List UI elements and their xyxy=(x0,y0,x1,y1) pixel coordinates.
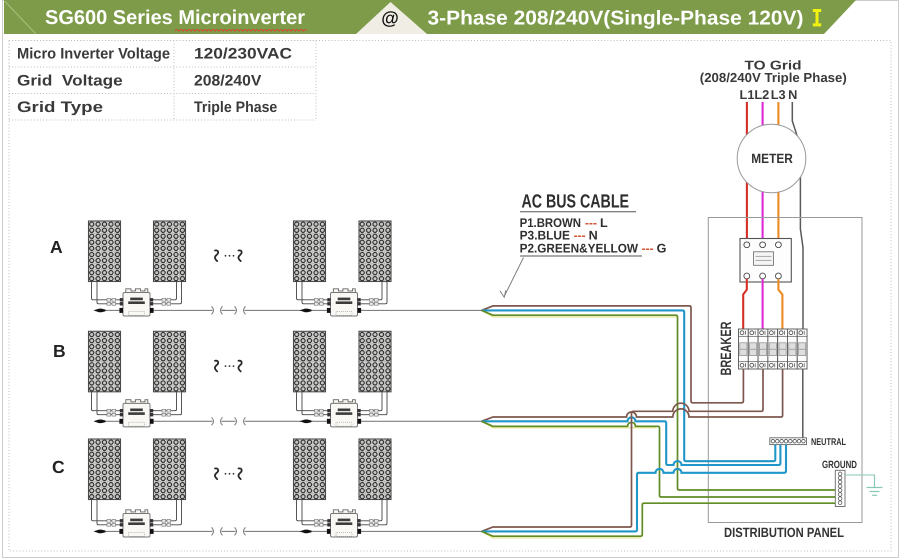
svg-text:Grid Type: Grid Type xyxy=(17,99,103,116)
svg-text:BREAKER: BREAKER xyxy=(718,321,735,375)
svg-text:P2.GREEN&YELLOW: P2.GREEN&YELLOW xyxy=(520,241,639,255)
svg-text:Grid Voltage: Grid Voltage xyxy=(17,73,123,90)
svg-text:METER: METER xyxy=(751,151,793,166)
svg-text:(208/240V Triple Phase): (208/240V Triple Phase) xyxy=(700,70,847,85)
svg-text:L: L xyxy=(600,216,608,230)
svg-text:G: G xyxy=(657,241,667,255)
svg-text:N: N xyxy=(788,87,797,102)
svg-text:Micro Inverter Voltage: Micro Inverter Voltage xyxy=(17,46,170,63)
svg-text:SG600 Series Microinverter: SG600 Series Microinverter xyxy=(45,7,305,29)
svg-text:@: @ xyxy=(381,8,399,28)
svg-text:120/230VAC: 120/230VAC xyxy=(194,46,292,63)
svg-text:L1: L1 xyxy=(740,87,755,102)
svg-text:A: A xyxy=(50,237,63,257)
svg-text:C: C xyxy=(52,457,65,477)
svg-text:B: B xyxy=(53,341,66,361)
svg-text:DISTRIBUTION PANEL: DISTRIBUTION PANEL xyxy=(724,525,844,540)
svg-text:NEUTRAL: NEUTRAL xyxy=(811,437,846,448)
svg-text:GROUND: GROUND xyxy=(822,459,857,471)
svg-text:---: --- xyxy=(642,241,654,255)
svg-text:3-Phase 208/240V(Single-Phase: 3-Phase 208/240V(Single-Phase 120V) xyxy=(428,8,804,30)
svg-text:AC BUS CABLE: AC BUS CABLE xyxy=(522,192,630,213)
svg-text:Triple Phase: Triple Phase xyxy=(194,99,277,116)
svg-text:208/240V: 208/240V xyxy=(194,73,262,90)
svg-text:L2: L2 xyxy=(754,87,769,102)
svg-text:L3: L3 xyxy=(771,87,786,102)
